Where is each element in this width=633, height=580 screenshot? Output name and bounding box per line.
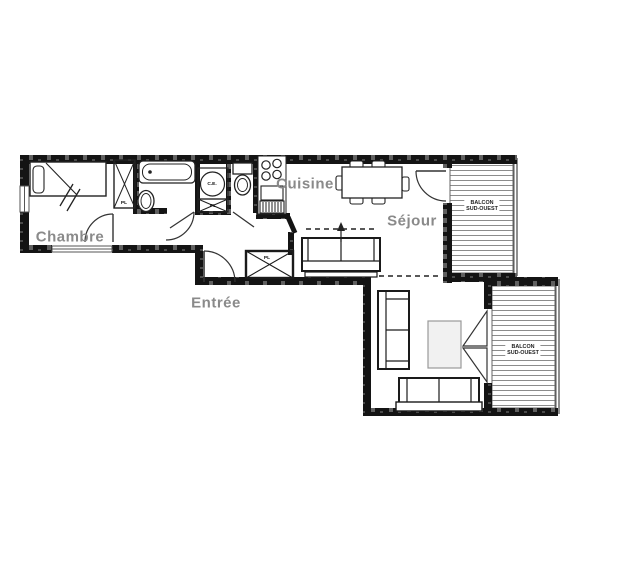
balcony-door-arc bbox=[416, 171, 446, 201]
floor-plan-drawing bbox=[0, 0, 633, 580]
bathroom-door-arc bbox=[166, 212, 194, 240]
balcony-1-deck bbox=[450, 158, 517, 276]
wc-toilet bbox=[233, 163, 252, 195]
balcony-2-label-line1: BALCON bbox=[507, 344, 539, 350]
wc-door bbox=[233, 212, 254, 227]
french-doors bbox=[463, 311, 487, 382]
chambre-bottom-window bbox=[52, 246, 112, 252]
bathtub bbox=[139, 161, 195, 183]
dining-table bbox=[336, 161, 409, 204]
chambre-left-window bbox=[20, 186, 29, 212]
washbasin bbox=[138, 191, 154, 212]
room-label-cuisine: Cuisine bbox=[276, 176, 334, 193]
closet-label-bathroom: PL bbox=[210, 204, 216, 209]
balcony-1-label-line1: BALCON bbox=[466, 200, 498, 206]
sofa-bed bbox=[302, 238, 380, 277]
balcony-1-label: BALCON SUD-OUEST bbox=[464, 199, 499, 213]
closet-label-entrance: PL bbox=[264, 256, 270, 261]
sofa-bottom bbox=[396, 378, 482, 411]
bed bbox=[30, 162, 106, 211]
balcony-2-label: BALCON SUD-OUEST bbox=[505, 343, 540, 357]
closet-label-chambre: PL bbox=[121, 201, 127, 206]
water-heater-label: C.E. bbox=[207, 182, 216, 187]
room-label-entree: Entrée bbox=[191, 295, 241, 312]
floor-plan: Chambre Cuisine Séjour Entrée BALCON SUD… bbox=[0, 0, 633, 580]
room-label-chambre: Chambre bbox=[36, 229, 105, 246]
room-label-sejour: Séjour bbox=[387, 213, 437, 230]
balcony-2-label-line2: SUD-OUEST bbox=[507, 350, 539, 356]
sofa-left bbox=[378, 291, 409, 369]
coffee-table bbox=[428, 321, 461, 368]
balcony-1-label-line2: SUD-OUEST bbox=[466, 206, 498, 212]
